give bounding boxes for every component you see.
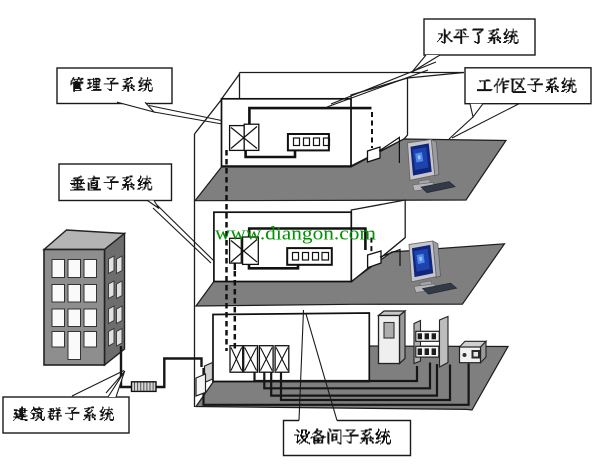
svg-text:www.diangon.com: www.diangon.com bbox=[215, 224, 376, 245]
